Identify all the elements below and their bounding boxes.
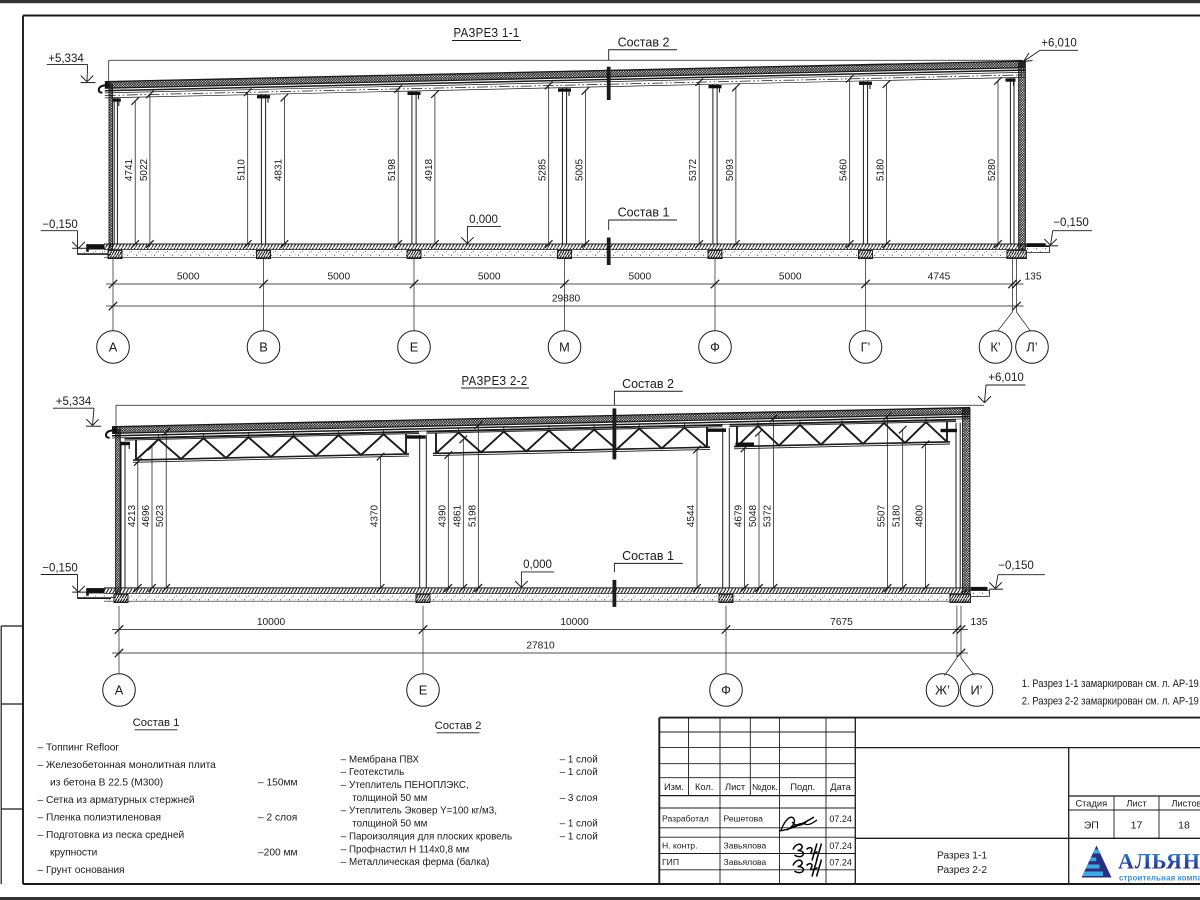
- svg-text:29880: 29880: [552, 294, 581, 305]
- svg-text:+5,334: +5,334: [48, 53, 84, 65]
- svg-text:АЛЬЯНС: АЛЬЯНС: [1118, 849, 1200, 874]
- svg-text:И’: И’: [970, 682, 982, 697]
- svg-text:Состав 2: Состав 2: [435, 720, 482, 732]
- svg-text:Изм.: Изм.: [664, 782, 684, 792]
- svg-text:– Грунт основания: – Грунт основания: [38, 865, 125, 876]
- svg-text:– Металлическая ферма (балка): – Металлическая ферма (балка): [341, 857, 490, 868]
- svg-text:Ф: Ф: [710, 339, 720, 354]
- svg-text:135: 135: [971, 617, 988, 628]
- svg-text:ГИП: ГИП: [662, 857, 679, 867]
- svg-text:27810: 27810: [526, 641, 555, 652]
- svg-text:строительная компания: строительная компания: [1119, 874, 1200, 883]
- svg-text:4861: 4861: [452, 504, 463, 527]
- svg-text:5110: 5110: [237, 159, 248, 181]
- svg-text:– Сетка из арматурных стержней: – Сетка из арматурных стержней: [38, 795, 195, 806]
- svg-text:– Железобетонная монолитная п: – Железобетонная монолитная плита: [38, 759, 217, 771]
- svg-text:4213: 4213: [127, 504, 138, 527]
- svg-text:5005: 5005: [574, 158, 585, 181]
- svg-text:А: А: [109, 339, 118, 354]
- svg-text:4745: 4745: [928, 272, 951, 283]
- svg-text:+6,010: +6,010: [1041, 38, 1077, 50]
- svg-text:Состав 1: Состав 1: [622, 549, 674, 563]
- svg-text:5023: 5023: [155, 504, 166, 527]
- svg-text:РАЗРЕЗ 1-1: РАЗРЕЗ 1-1: [454, 25, 520, 40]
- svg-text:2. Разрез 2-2 замаркирован см.: 2. Разрез 2-2 замаркирован см. л. АР-19: [1022, 696, 1199, 708]
- svg-text:Разработал: Разработал: [662, 814, 709, 824]
- svg-text:– Топпинг Refloor: – Топпинг Refloor: [38, 743, 120, 754]
- svg-text:4390: 4390: [437, 504, 448, 527]
- svg-text:– Утеплитель Эковер Y=100 кг/м: – Утеплитель Эковер Y=100 кг/м3,: [341, 806, 497, 817]
- svg-text:10000: 10000: [560, 617, 589, 628]
- svg-text:5285: 5285: [538, 158, 549, 181]
- svg-text:Завьялова: Завьялова: [724, 857, 767, 867]
- svg-text:Стадия: Стадия: [1075, 798, 1107, 808]
- svg-text:5198: 5198: [467, 504, 478, 527]
- svg-text:– 1 слой: – 1 слой: [560, 754, 598, 765]
- svg-text:−0,150: −0,150: [1053, 217, 1089, 229]
- svg-text:Завьялова: Завьялова: [724, 841, 767, 851]
- svg-text:5048: 5048: [748, 504, 759, 527]
- svg-text:– 1 слой: – 1 слой: [560, 831, 598, 842]
- svg-text:Кол.: Кол.: [695, 782, 713, 792]
- svg-text:из бетона В 22.5 (М300): из бетона В 22.5 (М300): [50, 777, 163, 789]
- svg-text:Н. контр.: Н. контр.: [662, 841, 697, 851]
- svg-text:+6,010: +6,010: [988, 372, 1024, 384]
- svg-text:Разрез 1-1: Разрез 1-1: [937, 851, 987, 862]
- svg-text:18: 18: [1178, 820, 1190, 832]
- svg-text:М: М: [559, 339, 570, 354]
- svg-text:0,000: 0,000: [523, 559, 552, 571]
- svg-text:4679: 4679: [734, 504, 745, 527]
- svg-text:5022: 5022: [139, 158, 150, 181]
- svg-text:Е: Е: [419, 682, 428, 697]
- svg-text:5280: 5280: [987, 158, 998, 181]
- svg-text:– 1 слой: – 1 слой: [560, 767, 598, 778]
- svg-text:ЭП: ЭП: [1084, 820, 1099, 832]
- svg-text:5198: 5198: [387, 158, 398, 181]
- svg-text:4741: 4741: [124, 158, 135, 181]
- svg-text:Г’: Г’: [861, 339, 871, 354]
- svg-text:5460: 5460: [839, 158, 850, 181]
- svg-text:5093: 5093: [725, 158, 736, 181]
- svg-text:– 1 слой: – 1 слой: [560, 819, 598, 830]
- svg-text:Разрез 2-2: Разрез 2-2: [937, 865, 987, 876]
- svg-text:5000: 5000: [628, 272, 651, 283]
- svg-text:4918: 4918: [424, 158, 435, 181]
- svg-text:4370: 4370: [370, 504, 381, 527]
- svg-text:РАЗРЕЗ 2-2: РАЗРЕЗ 2-2: [462, 373, 528, 388]
- svg-text:– Подготовка из песка средней: – Подготовка из песка средней: [38, 830, 185, 841]
- svg-text:Состав 1: Состав 1: [618, 206, 670, 220]
- svg-text:17: 17: [1131, 820, 1143, 832]
- svg-text:5372: 5372: [688, 158, 699, 181]
- svg-text:5000: 5000: [327, 272, 350, 283]
- svg-text:−0,150: −0,150: [998, 560, 1034, 572]
- svg-text:1. Разрез 1-1 замаркирован см.: 1. Разрез 1-1 замаркирован см. л. АР-19: [1022, 678, 1199, 690]
- svg-text:−0,150: −0,150: [42, 563, 78, 575]
- svg-text:№док.: №док.: [752, 782, 778, 792]
- svg-text:– Утеплитель ПЕНОПЛЭКС,: – Утеплитель ПЕНОПЛЭКС,: [341, 780, 469, 791]
- svg-text:Решетова: Решетова: [724, 814, 764, 824]
- svg-text:Лист: Лист: [1126, 798, 1147, 808]
- svg-text:7675: 7675: [830, 617, 853, 628]
- svg-text:– Пароизоляция для плоских кро: – Пароизоляция для плоских кровель: [341, 831, 512, 842]
- svg-text:– 150мм: – 150мм: [258, 778, 298, 789]
- svg-text:5000: 5000: [177, 272, 200, 283]
- svg-text:135: 135: [1025, 272, 1042, 283]
- svg-text:Лист: Лист: [725, 782, 746, 792]
- svg-text:А: А: [115, 682, 124, 697]
- svg-text:Состав 2: Состав 2: [618, 36, 670, 50]
- svg-text:4544: 4544: [686, 504, 697, 527]
- svg-text:+5,334: +5,334: [56, 396, 92, 408]
- svg-text:Листов: Листов: [1171, 798, 1200, 808]
- svg-text:Ж’: Ж’: [935, 682, 950, 697]
- svg-text:5372: 5372: [763, 504, 774, 527]
- svg-text:–200 мм: –200 мм: [258, 848, 298, 859]
- svg-text:В: В: [259, 339, 268, 354]
- svg-text:К’: К’: [990, 339, 1000, 354]
- svg-text:4696: 4696: [141, 504, 152, 527]
- svg-text:10000: 10000: [257, 617, 286, 628]
- svg-text:4800: 4800: [914, 504, 925, 527]
- svg-text:толщиной 50 мм: толщиной 50 мм: [352, 819, 427, 830]
- svg-text:5180: 5180: [892, 504, 903, 527]
- svg-text:Подп.: Подп.: [790, 782, 815, 792]
- svg-text:Состав 2: Состав 2: [622, 377, 674, 391]
- svg-text:5000: 5000: [779, 272, 802, 283]
- svg-text:– 3 слоя: – 3 слоя: [560, 793, 598, 804]
- svg-text:Е: Е: [410, 339, 419, 354]
- svg-text:0,000: 0,000: [469, 214, 498, 226]
- svg-text:−0,150: −0,150: [42, 219, 78, 231]
- svg-text:– 2 слоя: – 2 слоя: [258, 813, 297, 824]
- svg-text:5180: 5180: [875, 158, 886, 181]
- svg-text:– Профнастил Н 114х0,8 мм: – Профнастил Н 114х0,8 мм: [341, 844, 470, 855]
- svg-text:Состав 1: Состав 1: [133, 717, 180, 729]
- svg-text:07.24: 07.24: [829, 814, 852, 824]
- svg-text:5507: 5507: [877, 504, 888, 527]
- svg-text:07.24: 07.24: [829, 857, 852, 867]
- svg-text:– Мембрана ПВХ: – Мембрана ПВХ: [341, 754, 420, 765]
- svg-text:Ф: Ф: [721, 682, 731, 697]
- svg-text:– Пленка полиэтиленовая: – Пленка полиэтиленовая: [38, 813, 162, 824]
- svg-text:Дата: Дата: [830, 782, 851, 792]
- svg-text:крупности: крупности: [50, 848, 97, 859]
- svg-text:4831: 4831: [273, 158, 284, 181]
- svg-text:– Геотекстиль: – Геотекстиль: [341, 767, 404, 778]
- svg-text:07.24: 07.24: [829, 841, 852, 851]
- svg-text:Л’: Л’: [1026, 339, 1037, 354]
- svg-text:5000: 5000: [478, 272, 501, 283]
- svg-text:толщиной 50 мм: толщиной 50 мм: [352, 793, 427, 804]
